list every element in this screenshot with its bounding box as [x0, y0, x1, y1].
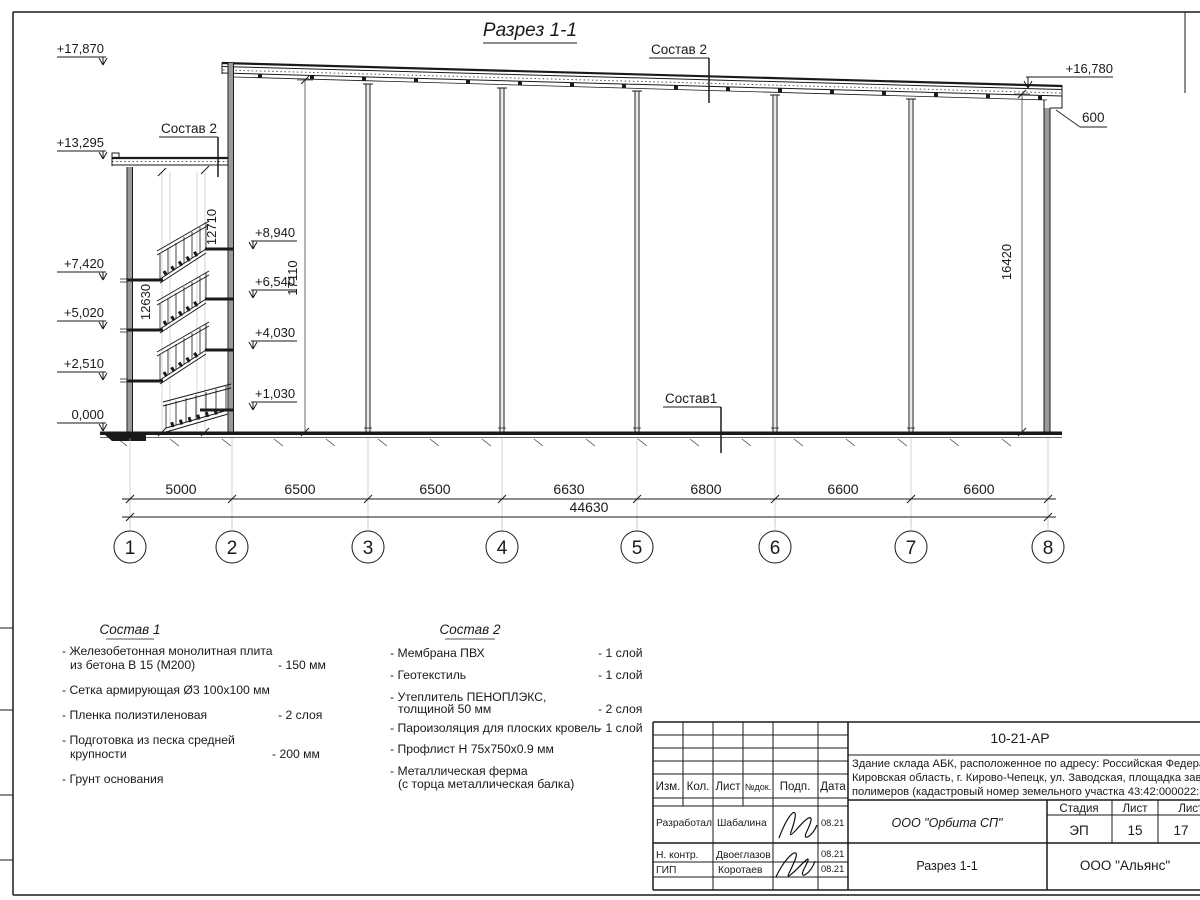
- callout-sostav1-floor: Состав1: [663, 391, 721, 453]
- svg-text:Листов: Листов: [1178, 803, 1200, 815]
- elevation-mark: +1,030: [249, 386, 297, 410]
- svg-text:- 1 слой: - 1 слой: [598, 721, 643, 735]
- svg-text:+16,780: +16,780: [1066, 61, 1113, 76]
- svg-text:Лист: Лист: [1123, 803, 1149, 815]
- svg-text:8: 8: [1043, 538, 1054, 559]
- svg-text:+8,940: +8,940: [255, 225, 295, 240]
- role: Разработал: [656, 817, 712, 829]
- svg-text:полимеров (кадастровый номер з: полимеров (кадастровый номер земельного …: [852, 786, 1200, 798]
- svg-text:15: 15: [1127, 823, 1142, 838]
- svg-text:- Железобетонная монолитная п: - Железобетонная монолитная плита: [62, 644, 273, 658]
- section-drawing-sheet: Разрез 1-1: [0, 0, 1200, 900]
- svg-text:17110: 17110: [285, 260, 300, 295]
- svg-text:3: 3: [363, 538, 374, 559]
- right-parapet: [1050, 98, 1062, 109]
- role: Н. контр.: [656, 850, 699, 861]
- svg-text:+5,020: +5,020: [64, 305, 104, 320]
- svg-text:5000: 5000: [165, 481, 196, 497]
- elevation-mark: +4,030: [249, 325, 297, 349]
- svg-text:ЭП: ЭП: [1069, 823, 1088, 838]
- svg-text:+13,295: +13,295: [57, 135, 104, 150]
- elevation-mark: 0,000: [57, 407, 107, 431]
- date: 08.21: [821, 818, 844, 828]
- signature-rows: Разработал Шабалина 08.21 Н. контр. Двое…: [656, 812, 844, 877]
- svg-text:- Грунт основания: - Грунт основания: [62, 772, 163, 786]
- svg-text:- Пленка полиэтиленовая: - Пленка полиэтиленовая: [62, 708, 207, 722]
- svg-text:Состав1: Состав1: [665, 391, 717, 406]
- svg-text:16420: 16420: [999, 244, 1014, 280]
- svg-text:- 150 мм: - 150 мм: [278, 658, 326, 672]
- vertical-dimensions: 17110 16420 12630 12710: [138, 76, 1030, 436]
- stage-sheet-cells: Стадия Лист Листов ЭП 15 17: [1059, 803, 1200, 838]
- svg-text:+4,030: +4,030: [255, 325, 295, 340]
- date: 08.21: [821, 849, 844, 859]
- svg-text:(с торца металлическая балка): (с торца металлическая балка): [398, 777, 574, 791]
- svg-text:+2,510: +2,510: [64, 356, 104, 371]
- svg-text:Изм.: Изм.: [656, 781, 681, 793]
- elevation-mark: +2,510: [57, 356, 107, 380]
- name: Коротаев: [718, 865, 763, 876]
- svg-text:+7,420: +7,420: [64, 256, 104, 271]
- svg-text:7: 7: [906, 538, 917, 559]
- svg-text:6630: 6630: [553, 481, 584, 497]
- date: 08.21: [821, 864, 844, 874]
- svg-text:6600: 6600: [827, 481, 858, 497]
- name: Шабалина: [717, 817, 767, 829]
- project-description: Здание склада АБК, расположенное по адре…: [852, 758, 1200, 798]
- foundation: [104, 434, 146, 441]
- stair-flight-4: [157, 221, 209, 283]
- svg-text:Состав 2: Состав 2: [651, 42, 707, 57]
- main-roof: [222, 63, 1062, 109]
- elevation-mark: +5,020: [57, 305, 107, 329]
- axis-bubble-1: 1: [114, 531, 146, 563]
- axis-bubble-7: 7: [895, 531, 927, 563]
- svg-text:Состав 2: Состав 2: [161, 121, 217, 136]
- svg-text:Дата: Дата: [820, 781, 846, 793]
- notes1-title: Состав 1: [100, 622, 161, 637]
- elevation-mark: +17,870: [57, 41, 107, 65]
- svg-text:12630: 12630: [138, 284, 153, 320]
- svg-text:Подп.: Подп.: [780, 781, 811, 793]
- svg-text:6500: 6500: [284, 481, 315, 497]
- svg-text:Стадия: Стадия: [1059, 803, 1098, 815]
- walls-and-columns: [228, 63, 1050, 434]
- name: Двоеглазов: [716, 850, 771, 861]
- signature-scribble: [779, 812, 817, 838]
- client-org: ООО "Альянс": [1080, 858, 1170, 873]
- design-org: ООО "Орбита СП": [892, 816, 1004, 830]
- title-block: Изм. Кол. Лист №док. Подп. Дата Разработ…: [653, 722, 1200, 890]
- svg-text:- Пароизоляция для плоских кро: - Пароизоляция для плоских кровель: [390, 721, 600, 735]
- stair-flight-2: [157, 322, 209, 384]
- svg-text:5: 5: [632, 538, 643, 559]
- axis-bubble-4: 4: [486, 531, 518, 563]
- callout-sostav2-roof: Состав 2: [649, 42, 709, 103]
- svg-text:- 1 слой: - 1 слой: [598, 646, 643, 660]
- axis-bubble-6: 6: [759, 531, 791, 563]
- floor-slab: [100, 432, 1062, 447]
- signature-scribble: [776, 853, 815, 877]
- svg-text:- Металлическая ферма: - Металлическая ферма: [390, 764, 528, 778]
- svg-text:- Геотекстиль: - Геотекстиль: [390, 668, 466, 682]
- notes-sostav2: Состав 2 - Мембрана ПВХ- 1 слой - Геотек…: [390, 622, 643, 791]
- grid-axes: 1 2 3 4 5 6 7 8: [114, 519, 1064, 563]
- parapet-dimension: 600: [1056, 110, 1107, 127]
- svg-text:600: 600: [1082, 110, 1105, 125]
- svg-text:1: 1: [125, 538, 136, 559]
- elevation-mark: +16,780: [1024, 61, 1113, 88]
- total-dimension: 44630: [570, 499, 609, 515]
- elevation-mark: +13,295: [57, 135, 107, 159]
- svg-text:из бетона В 15 (М200): из бетона В 15 (М200): [70, 658, 195, 672]
- notes-sostav1: Состав 1 - Железобетонная монолитная пли…: [62, 622, 326, 786]
- elevation-mark: +7,420: [57, 256, 107, 280]
- svg-text:12710: 12710: [204, 209, 219, 245]
- role: ГИП: [656, 865, 676, 876]
- svg-text:6800: 6800: [690, 481, 721, 497]
- svg-text:- Мембрана ПВХ: - Мембрана ПВХ: [390, 646, 485, 660]
- svg-text:крупности: крупности: [70, 747, 127, 761]
- axis-bubble-2: 2: [216, 531, 248, 563]
- svg-text:Кировская область, г. Кирово-Ч: Кировская область, г. Кирово-Чепецк, ул.…: [852, 772, 1200, 784]
- svg-text:+17,870: +17,870: [57, 41, 104, 56]
- svg-text:Кол.: Кол.: [687, 781, 710, 793]
- sheet-name: Разрез 1-1: [916, 859, 977, 873]
- elevation-mark: +8,940: [249, 225, 297, 249]
- svg-text:- 2 слоя: - 2 слоя: [598, 702, 642, 716]
- svg-text:6: 6: [770, 538, 781, 559]
- svg-text:+1,030: +1,030: [255, 386, 295, 401]
- svg-text:- Сетка армирующая Ø3 100х100: - Сетка армирующая Ø3 100х100 мм: [62, 683, 270, 697]
- svg-text:2: 2: [227, 538, 238, 559]
- view-title: Разрез 1-1: [483, 20, 577, 41]
- svg-text:- Подготовка из песка средней: - Подготовка из песка средней: [62, 733, 235, 747]
- svg-text:толщиной 50 мм: толщиной 50 мм: [398, 702, 491, 716]
- stair-landings: [127, 249, 234, 410]
- svg-text:Здание склада АБК, расположенн: Здание склада АБК, расположенное по адре…: [852, 758, 1200, 770]
- svg-text:0,000: 0,000: [71, 407, 104, 422]
- axis-bubble-5: 5: [621, 531, 653, 563]
- document-number: 10-21-АР: [990, 730, 1049, 746]
- svg-text:- 200 мм: - 200 мм: [272, 747, 320, 761]
- svg-text:- Профлист Н 75х750х0.9 мм: - Профлист Н 75х750х0.9 мм: [390, 742, 554, 756]
- svg-text:6600: 6600: [963, 481, 994, 497]
- svg-text:6500: 6500: [419, 481, 450, 497]
- svg-text:Лист: Лист: [716, 781, 742, 793]
- stair-tower: [112, 153, 234, 434]
- svg-text:- 1 слой: - 1 слой: [598, 668, 643, 682]
- axis-bubble-8: 8: [1032, 531, 1064, 563]
- callout-sostav2-tower: Состав 2: [159, 121, 218, 177]
- svg-text:№док.: №док.: [745, 782, 771, 792]
- bottom-dimensions: 5000 6500 6500 6630 6800 6600 6600 44630: [122, 438, 1056, 526]
- axis-bubble-3: 3: [352, 531, 384, 563]
- svg-text:4: 4: [497, 538, 508, 559]
- svg-text:- 2 слоя: - 2 слоя: [278, 708, 322, 722]
- notes2-title: Состав 2: [440, 622, 501, 637]
- svg-text:17: 17: [1173, 823, 1188, 838]
